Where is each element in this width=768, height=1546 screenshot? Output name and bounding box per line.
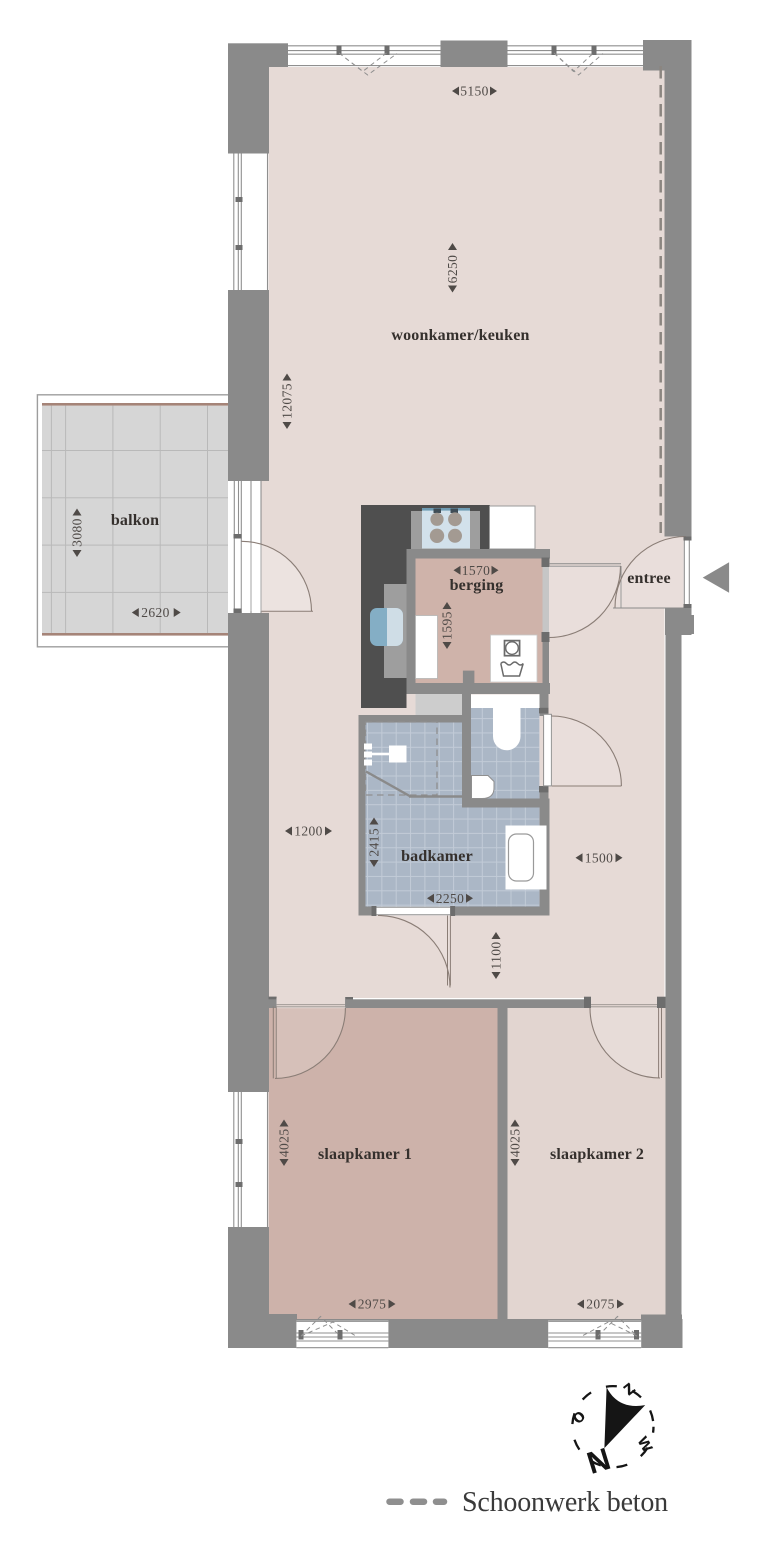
svg-text:5150: 5150: [460, 84, 489, 99]
svg-text:entree: entree: [627, 570, 671, 587]
svg-text:4025: 4025: [277, 1128, 292, 1157]
svg-text:slaapkamer 2: slaapkamer 2: [550, 1146, 644, 1163]
svg-text:1570: 1570: [462, 563, 491, 578]
svg-text:3080: 3080: [70, 518, 85, 547]
svg-text:2975: 2975: [358, 1297, 387, 1312]
svg-text:2620: 2620: [141, 605, 170, 620]
svg-text:6250: 6250: [445, 255, 460, 284]
svg-text:2075: 2075: [586, 1297, 615, 1312]
svg-text:2415: 2415: [367, 828, 382, 857]
svg-text:Schoonwerk beton: Schoonwerk beton: [462, 1487, 668, 1518]
svg-text:1100: 1100: [489, 941, 504, 969]
svg-text:1595: 1595: [440, 611, 455, 640]
svg-text:4025: 4025: [508, 1128, 523, 1157]
svg-text:badkamer: badkamer: [401, 848, 473, 865]
svg-text:balkon: balkon: [111, 512, 159, 529]
svg-text:12075: 12075: [280, 383, 295, 419]
svg-text:slaapkamer 1: slaapkamer 1: [318, 1146, 412, 1163]
svg-text:berging: berging: [450, 577, 504, 594]
svg-text:1200: 1200: [294, 824, 323, 839]
svg-text:woonkamer/keuken: woonkamer/keuken: [391, 327, 529, 344]
svg-text:1500: 1500: [585, 850, 614, 865]
svg-text:2250: 2250: [436, 891, 465, 906]
